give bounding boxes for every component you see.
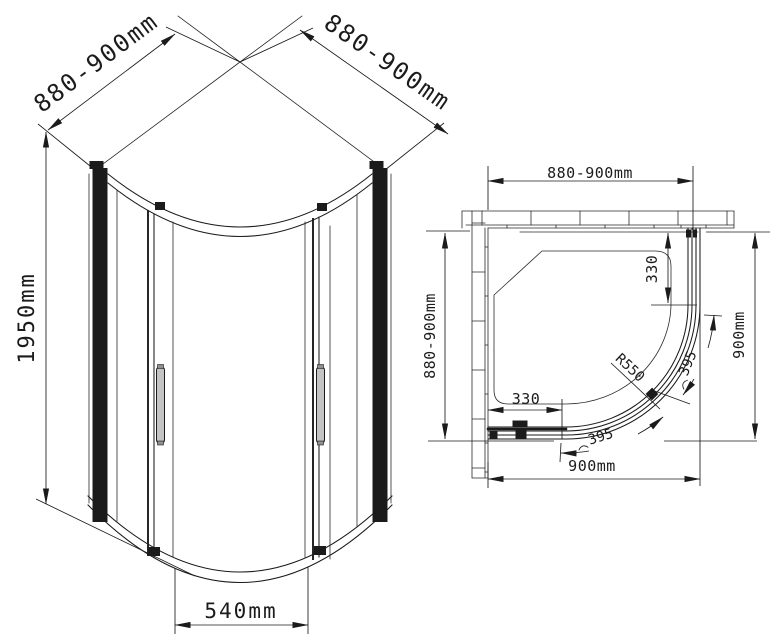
dim-label-width-left: 880-900mm	[29, 7, 164, 118]
door-handle-left-cap-top	[158, 365, 164, 369]
bottom-guide-left	[148, 547, 160, 556]
door-handle-right	[317, 367, 325, 443]
arc-dim-lower-a	[638, 417, 663, 434]
door-handle-left-cap-bottom	[158, 441, 164, 445]
dim-label-arc-upper: 395	[676, 349, 700, 378]
door-handle-right-cap-bottom	[318, 441, 324, 445]
arc-length-symbol-upper	[681, 379, 688, 389]
drawing-canvas: 880-900mm 880-900mm 1950mm 540mm	[0, 0, 773, 643]
top-roller-left	[155, 202, 165, 210]
bottom-rail-inner	[88, 496, 392, 572]
front-dimensions: 880-900mm 880-900mm 1950mm 540mm	[15, 7, 456, 634]
dim-label-right-depth: 900mm	[730, 311, 748, 359]
dim-label-bottom-width: 900mm	[568, 457, 616, 475]
dim-label-panel-bottom: 330	[512, 390, 541, 408]
roller-carriage-top	[513, 421, 528, 428]
wall-top-brick-joints	[482, 211, 727, 228]
roller-carriage-bottom	[516, 430, 527, 439]
wall-left-brick-joints	[472, 223, 488, 472]
front-elevation-view: 880-900mm 880-900mm 1950mm 540mm	[15, 7, 456, 634]
arc-dim-ticks	[560, 315, 722, 462]
wall-profile-bracket-bottom	[490, 431, 498, 439]
arc-length-symbol-lower	[578, 445, 588, 451]
shower-enclosure-technical-drawing: 880-900mm 880-900mm 1950mm 540mm	[0, 0, 773, 643]
dim-label-top-width: 880-900mm	[547, 164, 633, 182]
ext-line-bottom	[36, 499, 195, 576]
bottom-guide-right	[314, 546, 326, 555]
dim-label-panel-right: 330	[643, 255, 661, 284]
wall-profile-bracket-top	[686, 230, 691, 238]
dim-label-width-right: 880-900mm	[319, 9, 456, 117]
plan-dimensions: 880-900mm 880-900mm 900mm 900mm 330 330 …	[421, 164, 770, 488]
front-structure	[88, 16, 392, 583]
outer-frame-edges	[89, 174, 391, 503]
door-handle-left	[157, 367, 165, 443]
corner-post-left	[93, 168, 108, 522]
wall-left	[472, 211, 488, 478]
dim-label-door-opening: 540mm	[204, 599, 277, 623]
plan-view: 880-900mm 880-900mm 900mm 900mm 330 330 …	[421, 164, 770, 488]
panel-clamp-top	[693, 230, 697, 238]
arc-dim-lower-b	[561, 451, 589, 453]
dim-label-arc-lower: 395	[586, 426, 615, 449]
top-roller-right	[317, 203, 327, 211]
bottom-rail-outer	[88, 505, 392, 583]
dim-label-left-depth: 880-900mm	[421, 293, 439, 379]
post-cap-right	[370, 161, 384, 169]
door-handle-right-cap-top	[318, 365, 324, 369]
ext-lines-left-depth	[426, 231, 757, 441]
dim-label-height: 1950mm	[15, 272, 40, 363]
arc-dim-upper-a	[708, 315, 714, 348]
corner-post-right	[373, 168, 388, 522]
